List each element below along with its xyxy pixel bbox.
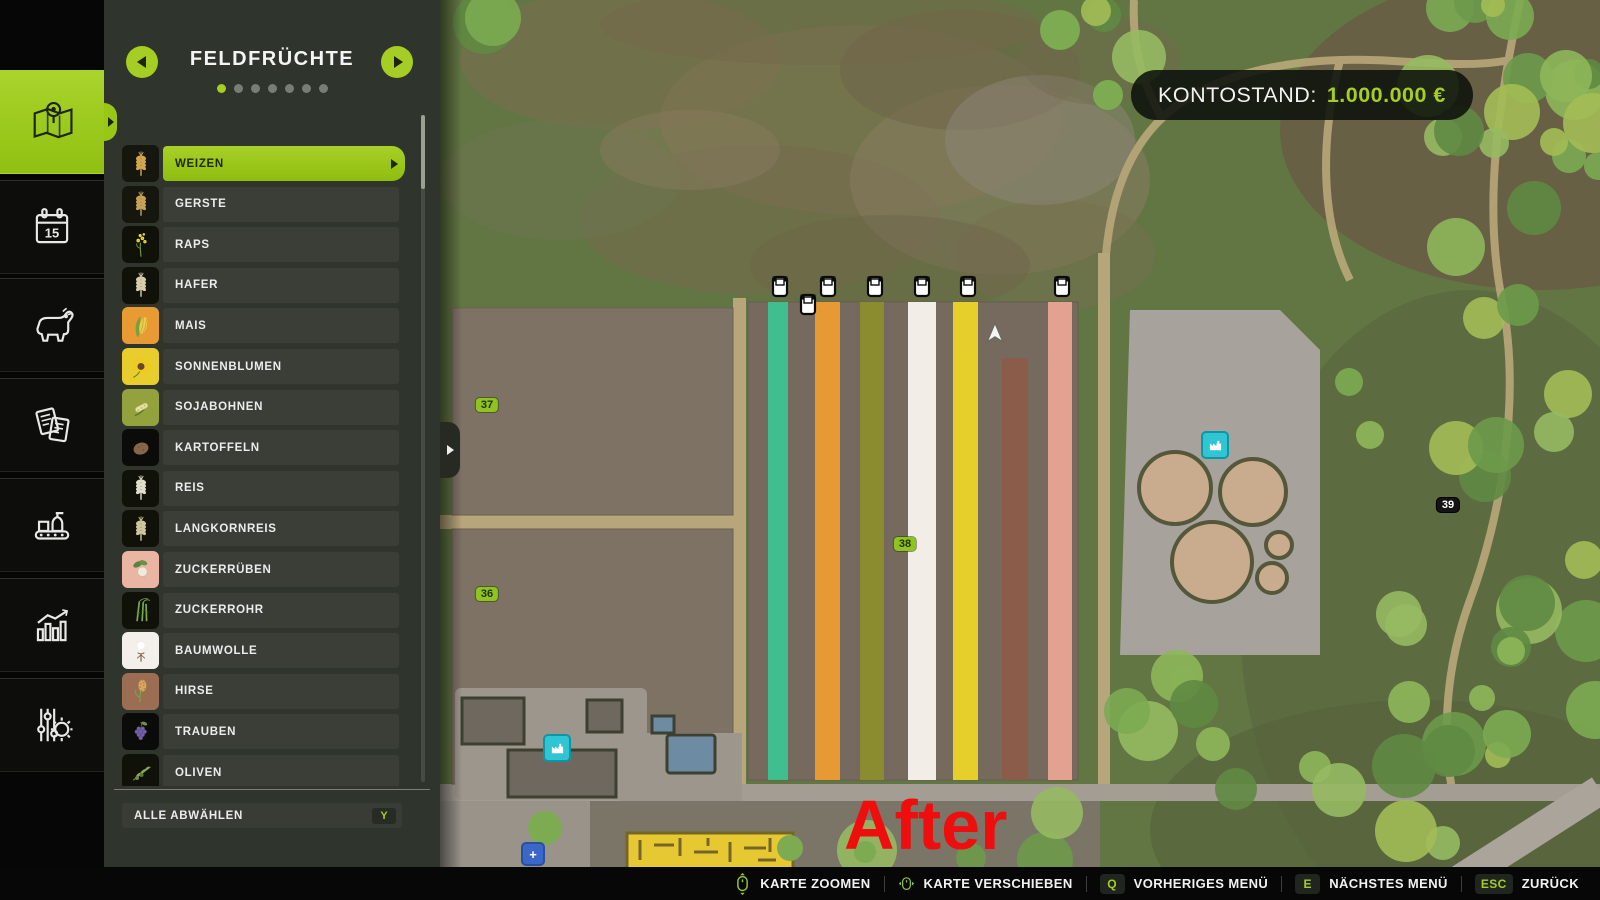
crop-item-sonnenblumen[interactable]: SONNENBLUMEN (122, 348, 402, 385)
crop-item-gerste[interactable]: GERSTE (122, 186, 402, 223)
map-terrain (440, 0, 1600, 900)
crop-item-langkornreis[interactable]: LANGKORNREIS (122, 510, 402, 547)
crop-row-bar: SONNENBLUMEN (163, 349, 399, 384)
crop-item-zuckerrohr[interactable]: ZUCKERROHR (122, 592, 402, 629)
field-number-badge: 37 (476, 398, 498, 412)
key-hint-e: E (1295, 874, 1320, 894)
crop-row-bar: SOJABOHNEN (163, 390, 399, 425)
category-pagination (104, 84, 440, 93)
crop-icon-tile (122, 510, 159, 547)
hotbar-hint-label: ZURÜCK (1522, 876, 1579, 891)
crop-row-bar: ZUCKERRÜBEN (163, 552, 399, 587)
hotbar-hint-zur-ck: ESCZURÜCK (1462, 874, 1592, 894)
panel-collapse-tab[interactable] (440, 422, 460, 478)
crop-label: HAFER (175, 279, 218, 291)
field-number-badge: 38 (894, 537, 916, 551)
vehicle-icon (868, 277, 883, 297)
vehicle-icon (821, 277, 836, 297)
crop-strip (860, 302, 884, 780)
cotton-icon (127, 637, 155, 665)
crop-icon-tile (122, 307, 159, 344)
olives-icon (127, 759, 155, 787)
crop-item-raps[interactable]: RAPS (122, 226, 402, 263)
cow-icon (25, 298, 79, 352)
crop-label: REIS (175, 482, 205, 494)
crop-row-bar: ZUCKERROHR (163, 593, 399, 628)
crop-item-kartoffeln[interactable]: KARTOFFELN (122, 429, 402, 466)
hotbar-hint-karte-zoomen: KARTE ZOOMEN (721, 872, 883, 896)
next-category-button[interactable] (381, 46, 413, 78)
crop-label: BAUMWOLLE (175, 645, 257, 657)
crop-label: TRAUBEN (175, 726, 236, 738)
potato-icon (127, 434, 155, 462)
crop-item-sojabohnen[interactable]: SOJABOHNEN (122, 389, 402, 426)
crop-icon-tile (122, 673, 159, 710)
key-hint-q: Q (1100, 874, 1125, 894)
crop-label: RAPS (175, 239, 210, 251)
crop-row-bar: TRAUBEN (163, 714, 399, 749)
crop-icon-tile (122, 226, 159, 263)
vehicle-icon (961, 277, 976, 297)
calendar-icon: 15 (25, 200, 79, 254)
statistics-icon (25, 598, 79, 652)
vehicle-icon (773, 277, 788, 297)
canola-icon (127, 231, 155, 259)
rice-icon (127, 474, 155, 502)
crop-icon-tile (122, 713, 159, 750)
hotbar-hint-vorheriges-men-: QVORHERIGES MENÜ (1087, 874, 1282, 894)
field-number-badge: 39 (1437, 498, 1459, 512)
sugarcane-icon (127, 596, 155, 624)
sunflower-icon (127, 353, 155, 381)
soybean-icon (127, 393, 155, 421)
map-icon (25, 95, 79, 149)
crop-label: LANGKORNREIS (175, 523, 277, 535)
road-vertical (733, 298, 746, 790)
crop-label: ZUCKERRÜBEN (175, 564, 272, 576)
helper-poi-icon[interactable]: + (521, 842, 545, 866)
crops-panel: FELDFRÜCHTE WEIZEN GERSTE RAPS (104, 0, 440, 900)
sidebar: 15 (0, 0, 104, 900)
grapes-icon (127, 718, 155, 746)
crop-row-bar: RAPS (163, 227, 399, 262)
sidebar-item-statistics[interactable] (0, 578, 104, 672)
hotbar-hint-label: NÄCHSTES MENÜ (1329, 876, 1448, 891)
key-hint-esc: ESC (1475, 874, 1513, 894)
crop-label: ZUCKERROHR (175, 604, 264, 616)
crop-item-hafer[interactable]: HAFER (122, 267, 402, 304)
production-poi-icon[interactable] (1201, 431, 1229, 459)
sugar-beet-icon (127, 556, 155, 584)
crop-icon-tile (122, 470, 159, 507)
pagination-dot (251, 84, 260, 93)
long-grain-rice-icon (127, 515, 155, 543)
selected-arrow-icon (391, 159, 398, 169)
crop-row-bar: OLIVEN (163, 755, 399, 786)
crop-row-bar: WEIZEN (163, 146, 405, 181)
scrollbar-thumb[interactable] (421, 115, 425, 189)
crop-icon-tile (122, 145, 159, 182)
balance-label: KONTOSTAND: (1158, 83, 1317, 108)
pagination-dot (319, 84, 328, 93)
chevron-right-icon (447, 445, 454, 455)
crop-icon-tile (122, 551, 159, 588)
pagination-dot (302, 84, 311, 93)
after-annotation: After (844, 790, 1007, 860)
contracts-icon (25, 398, 79, 452)
crop-strip (953, 302, 978, 780)
crop-item-zuckerrüben[interactable]: ZUCKERRÜBEN (122, 551, 402, 588)
crop-strip (815, 302, 840, 780)
scrollbar-track (421, 115, 425, 782)
sidebar-item-contracts[interactable] (0, 378, 104, 472)
sidebar-item-production[interactable] (0, 478, 104, 572)
crop-label: WEIZEN (175, 158, 224, 170)
corn-icon (127, 312, 155, 340)
barley-icon (127, 190, 155, 218)
pagination-dot (217, 84, 226, 93)
pagination-dot (234, 84, 243, 93)
road-horizontal (440, 515, 746, 529)
crop-label: KARTOFFELN (175, 442, 260, 454)
crop-strip (1048, 302, 1072, 780)
mouse-move-icon (898, 872, 915, 896)
crop-item-reis[interactable]: REIS (122, 470, 402, 507)
crop-label: OLIVEN (175, 767, 222, 779)
crop-icon-tile (122, 754, 159, 786)
map-view[interactable]: KONTOSTAND: 1.000.000 € 37363839 + After (440, 0, 1600, 900)
crop-label: SOJABOHNEN (175, 401, 263, 413)
game-screen: { "colors": { "accent": "#a6cd25", "pane… (0, 0, 1600, 900)
balance-value: 1.000.000 € (1327, 83, 1446, 108)
hotbar-hint-karte-verschieben: KARTE VERSCHIEBEN (885, 872, 1086, 896)
panel-divider (114, 789, 430, 790)
mouse-zoom-icon (734, 872, 751, 896)
chevron-right-icon (394, 56, 403, 68)
hotbar-hint-label: KARTE VERSCHIEBEN (924, 876, 1073, 891)
vehicle-icon (915, 277, 930, 297)
crop-strip (768, 302, 788, 780)
crop-icon-tile (122, 186, 159, 223)
crop-row-bar: BAUMWOLLE (163, 633, 399, 668)
crop-row-bar: GERSTE (163, 187, 399, 222)
crop-row-bar: MAIS (163, 308, 399, 343)
crop-icon-tile (122, 348, 159, 385)
key-hint-y: Y (372, 808, 396, 824)
crop-row-bar: KARTOFFELN (163, 430, 399, 465)
crop-icon-tile (122, 632, 159, 669)
crop-icon-tile (122, 389, 159, 426)
production-icon (25, 498, 79, 552)
crop-icon-tile (122, 592, 159, 629)
crop-item-trauben[interactable]: TRAUBEN (122, 713, 402, 750)
sidebar-item-map[interactable] (0, 70, 104, 174)
crop-label: HIRSE (175, 685, 214, 697)
crop-row-bar: LANGKORNREIS (163, 511, 399, 546)
hotbar-hint-n-chstes-men-: ENÄCHSTES MENÜ (1282, 874, 1461, 894)
crop-item-baumwolle[interactable]: BAUMWOLLE (122, 632, 402, 669)
crop-item-weizen[interactable]: WEIZEN (122, 145, 402, 182)
crop-icon-tile (122, 267, 159, 304)
deselect-all-button[interactable]: ALLE ABWÄHLEN Y (122, 803, 402, 828)
oat-icon (127, 271, 155, 299)
vehicle-icon (1055, 277, 1070, 297)
wheat-icon (127, 150, 155, 178)
round-pen-yard (1120, 310, 1320, 655)
sorghum-icon (127, 677, 155, 705)
crop-item-hirse[interactable]: HIRSE (122, 673, 402, 710)
crop-icon-tile (122, 429, 159, 466)
crop-item-mais[interactable]: MAIS (122, 307, 402, 344)
hotbar-hint-label: VORHERIGES MENÜ (1134, 876, 1269, 891)
sidebar-item-settings[interactable] (0, 678, 104, 772)
crop-list: WEIZEN GERSTE RAPS HAFER (122, 145, 424, 786)
crop-label: SONNENBLUMEN (175, 361, 282, 373)
crop-item-oliven[interactable]: OLIVEN (122, 754, 402, 786)
settings-icon (25, 698, 79, 752)
sidebar-item-animals[interactable] (0, 278, 104, 372)
crop-label: GERSTE (175, 198, 227, 210)
deselect-all-label: ALLE ABWÄHLEN (134, 810, 243, 822)
pagination-dot (285, 84, 294, 93)
sidebar-item-calendar[interactable]: 15 (0, 180, 104, 274)
crop-row-bar: HIRSE (163, 674, 399, 709)
svg-text:15: 15 (45, 225, 59, 240)
crop-row-bar: REIS (163, 471, 399, 506)
crop-label: MAIS (175, 320, 207, 332)
crop-row-bar: HAFER (163, 268, 399, 303)
hotbar: KARTE ZOOMEN KARTE VERSCHIEBENQVORHERIGE… (0, 867, 1600, 900)
corn-maze (627, 833, 793, 869)
hotbar-hint-label: KARTE ZOOMEN (760, 876, 870, 891)
production-poi-icon[interactable] (543, 734, 571, 762)
crop-strip (1002, 358, 1028, 780)
pagination-dot (268, 84, 277, 93)
vehicle-icon (801, 295, 816, 315)
field-number-badge: 36 (476, 587, 498, 601)
balance-badge: KONTOSTAND: 1.000.000 € (1131, 70, 1473, 120)
